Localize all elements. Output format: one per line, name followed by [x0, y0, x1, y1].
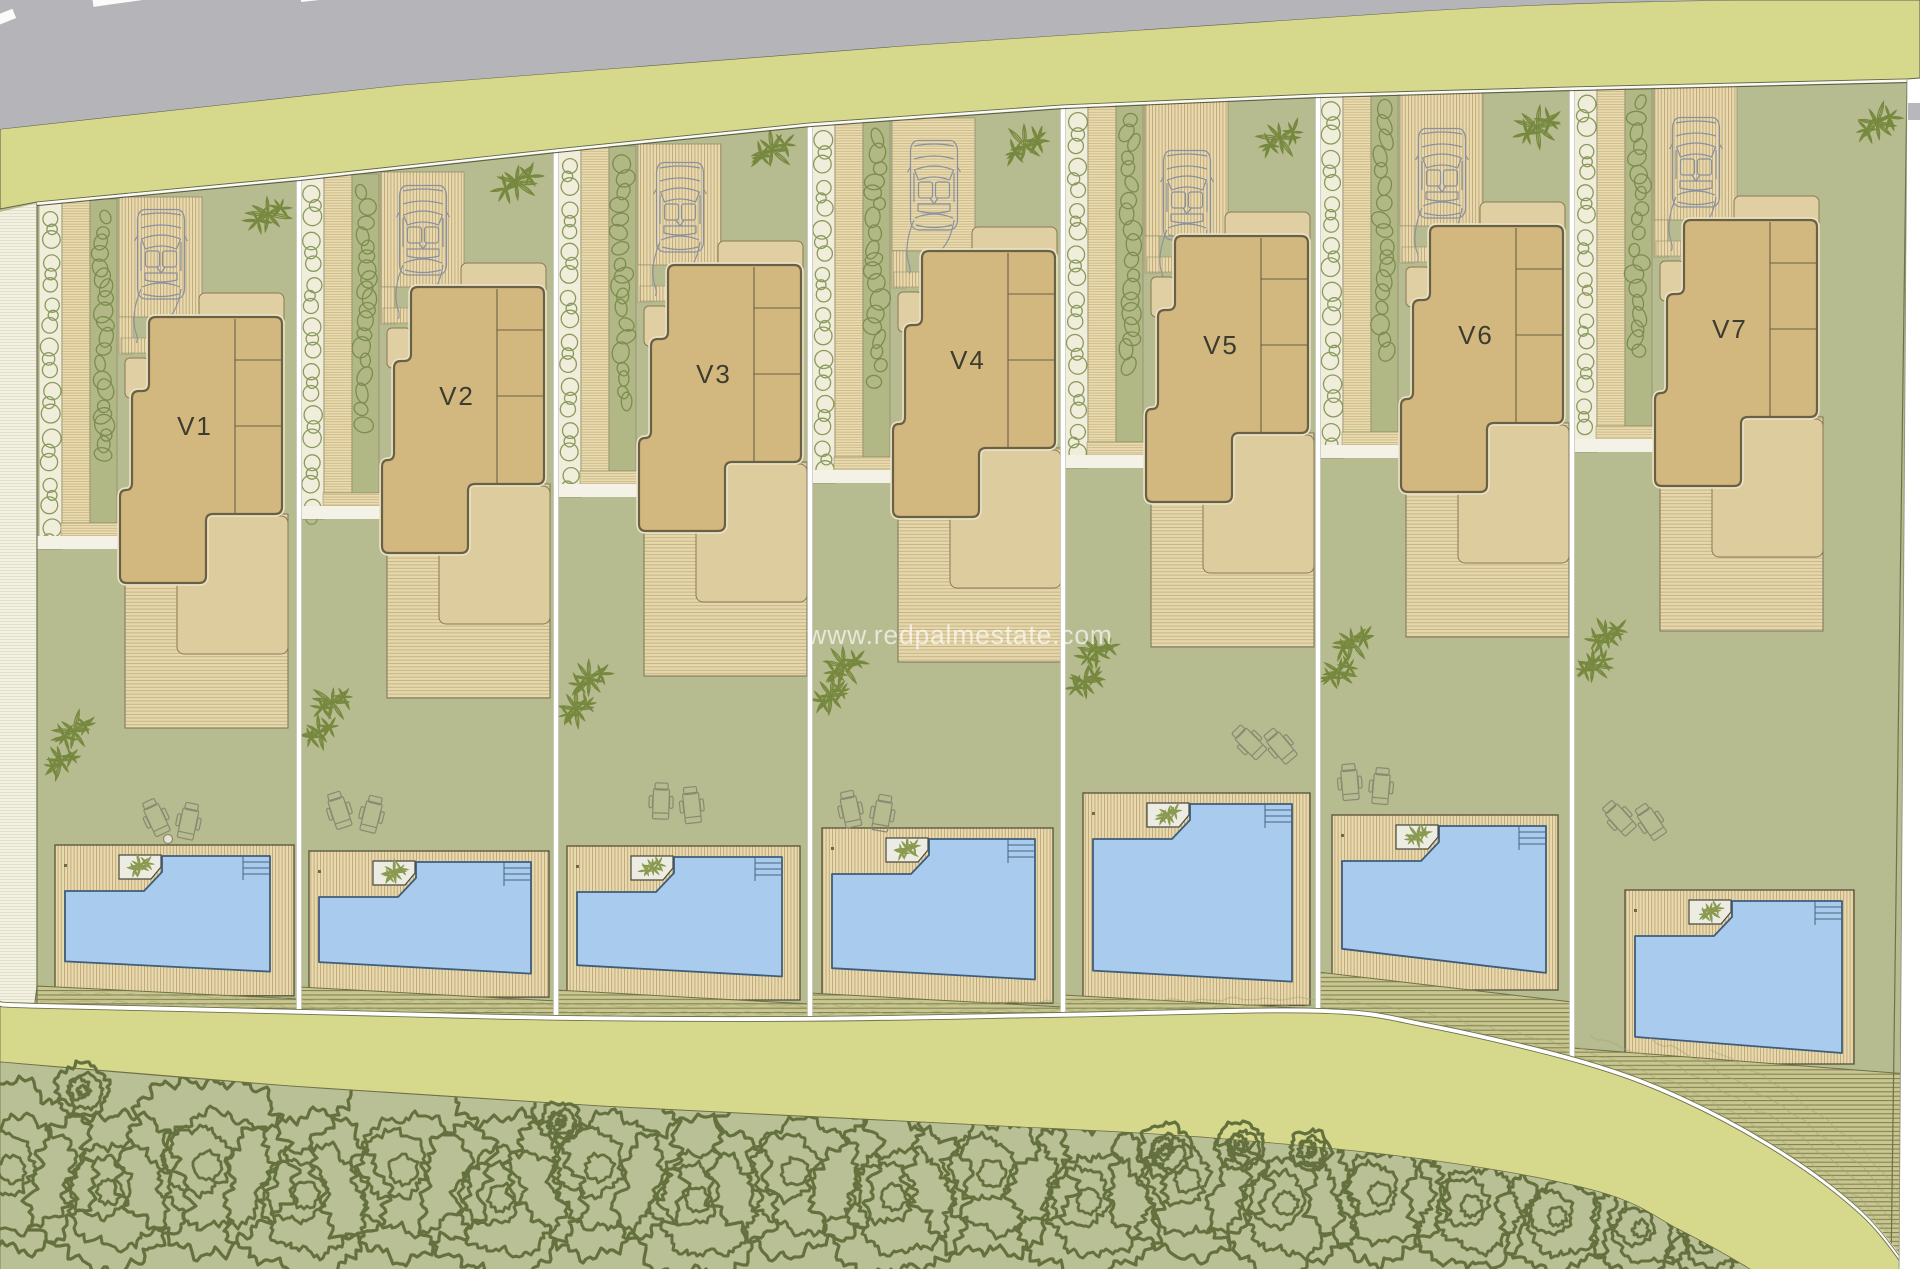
svg-text:V2: V2 — [439, 381, 475, 411]
svg-text:V7: V7 — [1712, 314, 1748, 344]
svg-text:V6: V6 — [1458, 320, 1494, 350]
svg-text:V5: V5 — [1203, 330, 1239, 360]
svg-text:V1: V1 — [177, 411, 213, 441]
svg-text:www.redpalmestate.com: www.redpalmestate.com — [806, 620, 1112, 650]
svg-text:V3: V3 — [696, 359, 732, 389]
svg-text:V4: V4 — [950, 345, 986, 375]
